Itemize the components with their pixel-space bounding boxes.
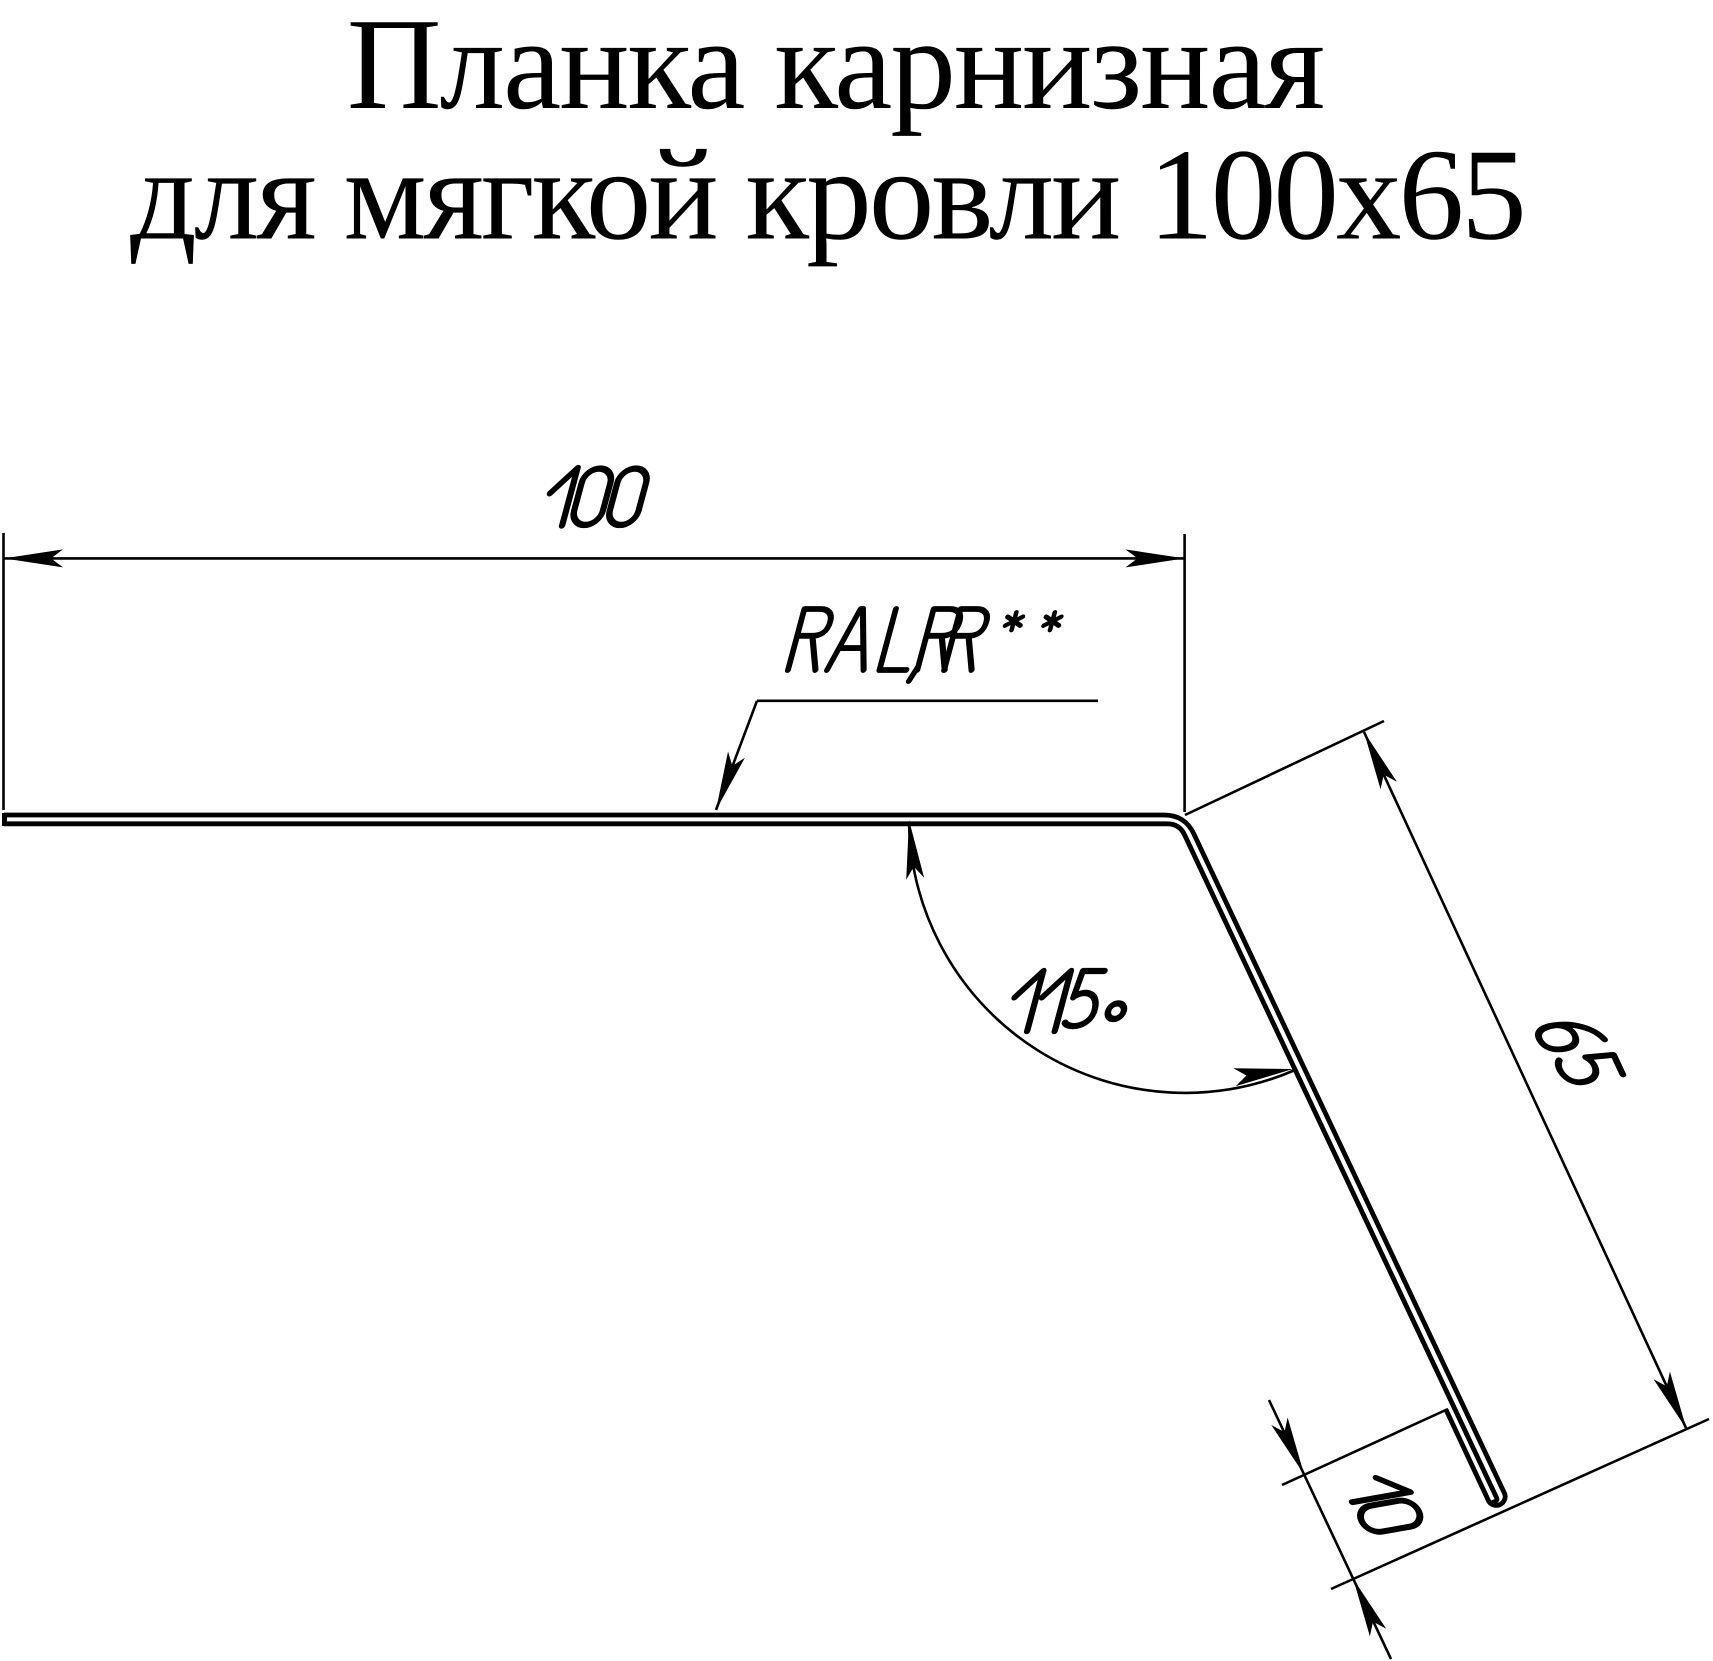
svg-text:Планка карнизная: Планка карнизная (347, 0, 1323, 137)
svg-text:для мягкой кровли 100x65: для мягкой кровли 100x65 (130, 123, 1524, 268)
